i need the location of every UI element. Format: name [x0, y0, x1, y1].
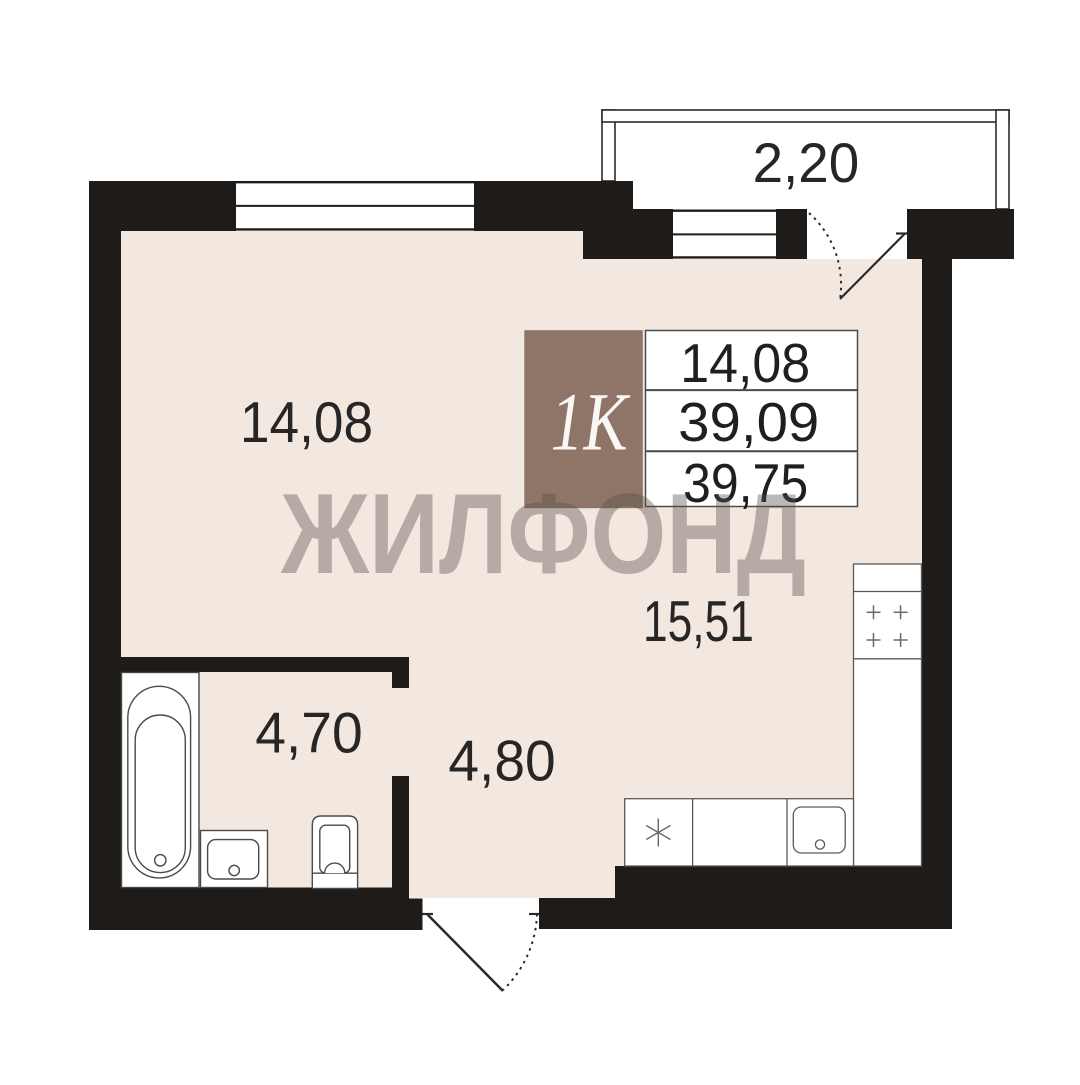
svg-text:39,09: 39,09 [678, 391, 819, 453]
svg-text:1K: 1K [551, 376, 631, 468]
svg-text:ЖИЛФОНД: ЖИЛФОНД [280, 471, 806, 598]
svg-text:15,51: 15,51 [643, 590, 754, 654]
svg-text:14,08: 14,08 [240, 391, 373, 455]
svg-text:2,20: 2,20 [753, 131, 860, 194]
svg-text:4,70: 4,70 [255, 702, 363, 766]
svg-text:14,08: 14,08 [680, 332, 810, 394]
svg-text:4,80: 4,80 [448, 730, 555, 794]
